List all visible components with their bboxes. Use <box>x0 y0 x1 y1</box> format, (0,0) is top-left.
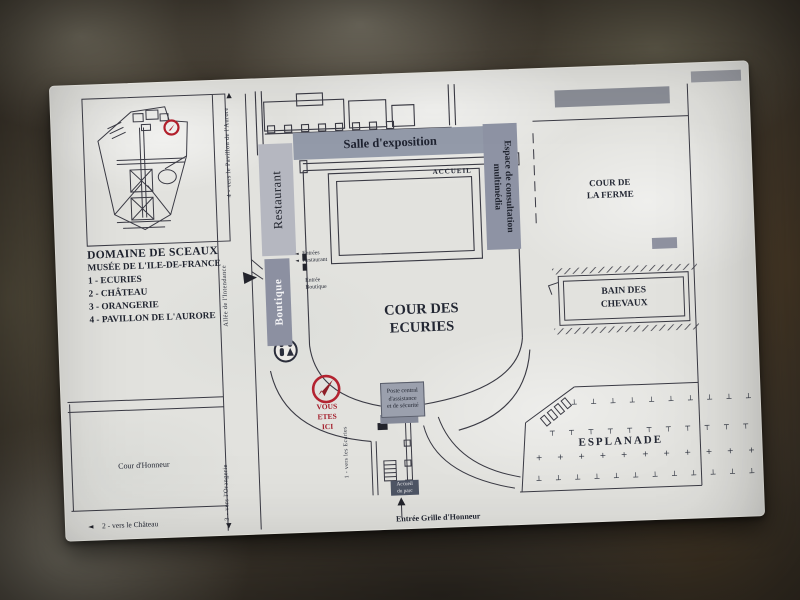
bain-des-chevaux-label: BAIN DES CHEVAUX <box>564 283 685 313</box>
gray-blocks <box>554 70 747 253</box>
restaurant-label: Restaurant <box>269 170 286 229</box>
accueil-label: ACCUEIL <box>429 166 475 176</box>
zone-boutique: Boutique <box>264 258 292 346</box>
orangerie-direction-arrow-icon: ▼ <box>226 522 232 530</box>
cour-de-la-ferme-label: COUR DE LA FERME <box>560 175 661 203</box>
cour-des-ecuries-label: COUR DES ECURIES <box>358 298 485 339</box>
entrees-restaurant-arrow2-icon: ◄ <box>295 259 299 264</box>
accueil-du-parc-box: Accueil du parc <box>391 480 420 496</box>
chateau-direction-arrow-icon: ◄ <box>88 523 94 531</box>
inset-drawing <box>82 95 226 243</box>
inset-you-are-here-icon <box>164 120 179 135</box>
zone-restaurant: Restaurant <box>258 143 296 256</box>
accueil-du-parc-label: Accueil du parc <box>397 481 414 494</box>
zone-espace-multimedia: Espace de consultation multimédia <box>483 123 522 250</box>
poste-central-box: Poste central d'assistance et de sécurit… <box>380 381 425 418</box>
map-panel: DOMAINE DE SCEAUX MUSÉE DE L'ILE-DE-FRAN… <box>49 60 765 541</box>
photo-scene: { "inset": { "title": "DOMAINE DE SCEAUX… <box>0 0 800 600</box>
legend: DOMAINE DE SCEAUX MUSÉE DE L'ILE-DE-FRAN… <box>87 243 268 325</box>
entrees-restaurant-label: Entrées Restaurant <box>302 250 336 265</box>
pavillon-direction-arrow-icon: ▲ <box>226 91 232 99</box>
entrees-restaurant-arrow-icon: ◄ <box>295 252 299 257</box>
inset-overview-map <box>81 94 230 247</box>
entree-boutique-label: Entrée Boutique <box>305 277 335 292</box>
poste-central-label: Poste central d'assistance et de sécurit… <box>386 388 418 412</box>
espace-multimedia-label: Espace de consultation multimédia <box>489 140 515 233</box>
boutique-label: Boutique <box>272 279 286 326</box>
salle-exposition-label: Salle d'exposition <box>343 134 437 152</box>
